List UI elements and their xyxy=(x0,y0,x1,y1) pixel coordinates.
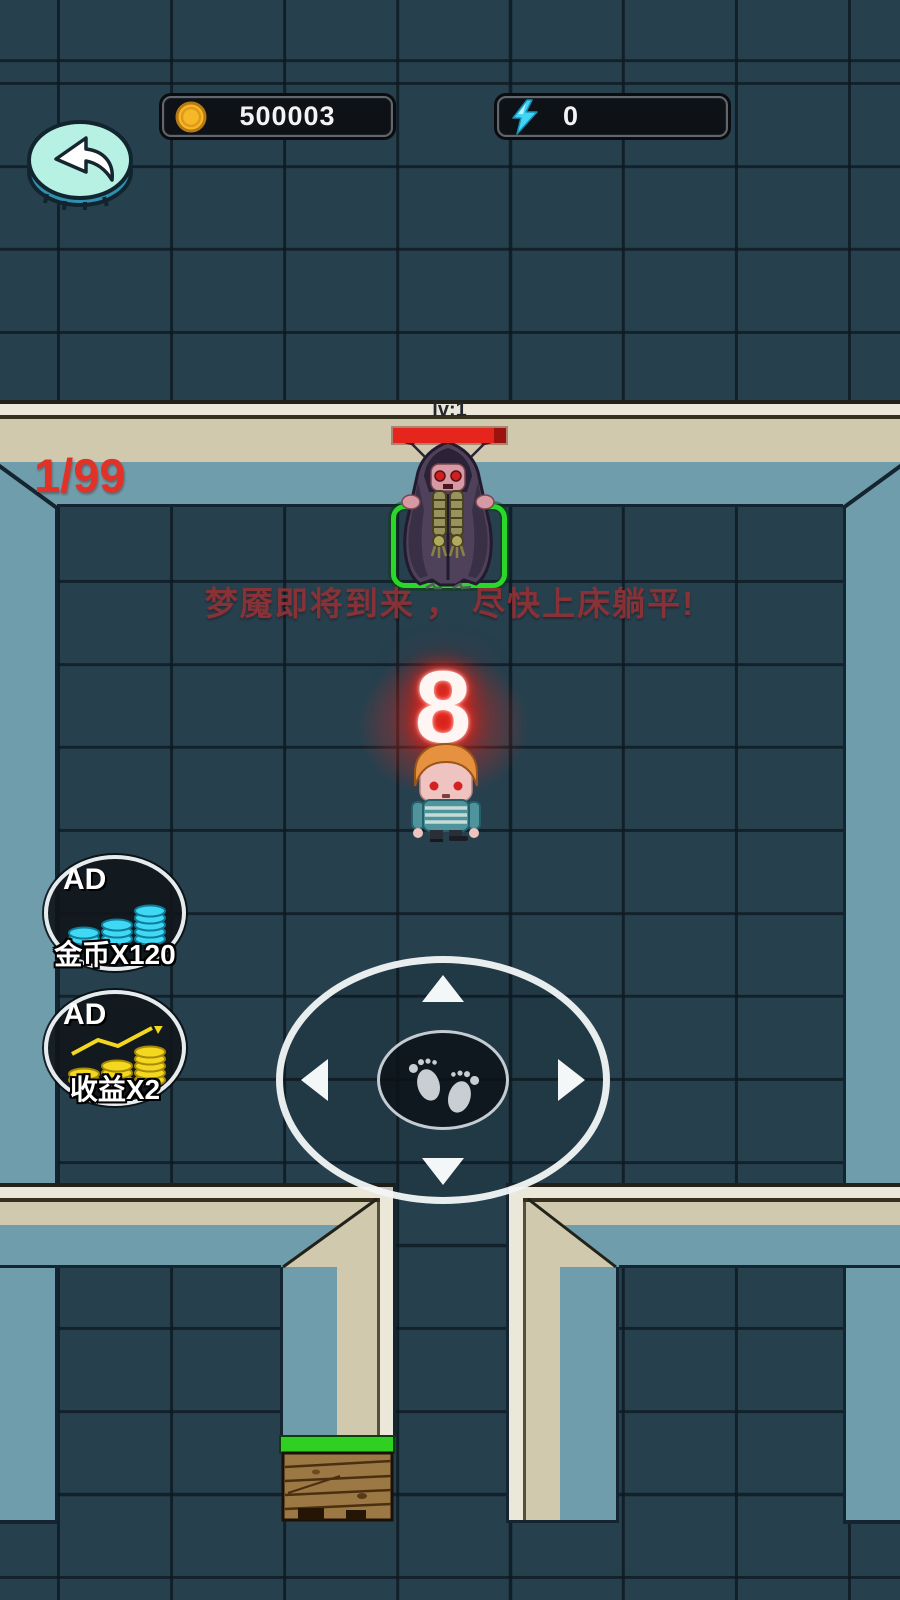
energy-value: 0 xyxy=(541,101,716,132)
boss-health-bar xyxy=(393,428,506,443)
coin-icon xyxy=(174,100,208,134)
joystick[interactable] xyxy=(276,956,610,1204)
joystick-right-arrow[interactable] xyxy=(558,1059,585,1101)
joystick-down-arrow[interactable] xyxy=(422,1158,464,1185)
coin-counter: 500003 xyxy=(162,96,393,137)
bed-health-bar xyxy=(280,1436,394,1453)
player-sprite xyxy=(398,742,494,842)
ad-button-profit[interactable]: AD 收益X2 xyxy=(44,990,186,1106)
ad-label: 收益X2 xyxy=(70,1068,160,1108)
game-viewport: 8 lv:1 1/99 梦魇即将到来 ， 尽快上床躺平! xyxy=(0,0,900,1600)
wave-counter: 1/99 xyxy=(34,448,125,503)
ad-label: 金币X120 xyxy=(54,933,175,973)
bed-crate xyxy=(276,1430,398,1525)
ad-button-coins[interactable]: AD 金币X120 xyxy=(44,855,186,971)
joystick-thumb-pad[interactable] xyxy=(377,1030,509,1130)
boss-level-label: lv:1 xyxy=(393,399,506,422)
left-wall-column xyxy=(0,506,57,1522)
boss-sprite xyxy=(398,438,498,592)
joystick-up-arrow[interactable] xyxy=(422,975,464,1002)
energy-counter: 0 xyxy=(497,96,728,137)
footprints-icon xyxy=(380,1033,506,1127)
right-wall-column xyxy=(843,506,900,1522)
lightning-icon xyxy=(509,99,541,135)
joystick-left-arrow[interactable] xyxy=(301,1059,328,1101)
coin-value: 500003 xyxy=(208,101,381,132)
warning-banner: 梦魇即将到来 ， 尽快上床躺平! xyxy=(0,577,900,625)
back-button[interactable] xyxy=(24,114,136,210)
